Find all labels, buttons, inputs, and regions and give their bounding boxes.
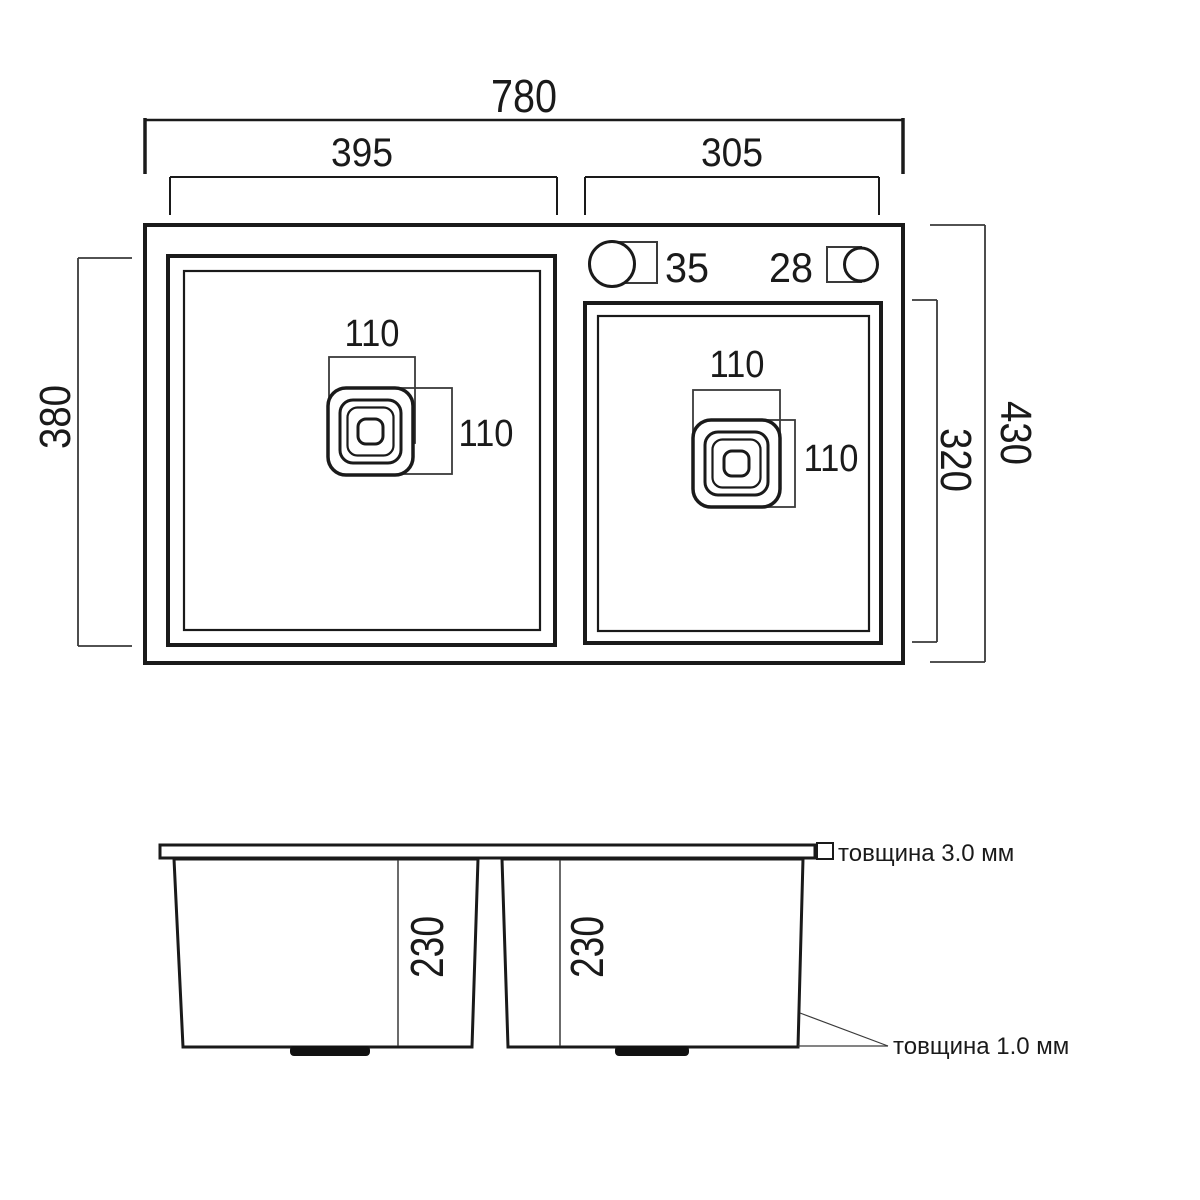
right-depth-label: 230 — [561, 916, 613, 978]
dim-395-label: 395 — [331, 131, 393, 175]
top-view: 780 395 305 380 430 — [31, 70, 1040, 663]
hole-28-label: 28 — [769, 244, 813, 291]
left-depth-label: 230 — [401, 916, 453, 978]
left-drain-height-label: 110 — [459, 413, 514, 455]
dim-780-label: 780 — [491, 70, 557, 122]
dim-320-label: 320 — [931, 428, 980, 492]
left-drain-width-label: 110 — [345, 313, 400, 355]
right-drain-height-label: 110 — [804, 438, 859, 480]
dim-380-label: 380 — [31, 385, 80, 449]
sink-technical-drawing: 780 395 305 380 430 — [0, 0, 1200, 1200]
wall-thickness-leader-1 — [800, 1013, 888, 1046]
extra-hole-28: 28 — [769, 244, 878, 291]
hole-35-label: 35 — [665, 244, 709, 291]
drawing-canvas: 780 395 305 380 430 — [0, 0, 1200, 1200]
dim-305-label: 305 — [701, 131, 763, 175]
extra-hole-circle — [845, 248, 878, 281]
dim-overall-width: 780 — [145, 70, 903, 174]
left-drain-center — [358, 419, 383, 444]
rim-thickness-label: товщина 3.0 мм — [838, 840, 1014, 867]
right-drain: 110 110 — [693, 344, 859, 507]
left-drain-stub — [290, 1046, 370, 1056]
faucet-hole-35: 35 — [590, 242, 710, 292]
faucet-hole-circle — [590, 242, 635, 287]
dim-430-label: 430 — [991, 401, 1040, 465]
side-view: товщина 3.0 мм 230 230 товщина 1.0 мм — [160, 840, 1069, 1060]
dim-right-bowl-width: 305 — [585, 131, 879, 215]
dim-left-bowl-depth: 380 — [31, 258, 132, 646]
dim-left-bowl-width: 395 — [170, 131, 557, 215]
right-drain-stub — [615, 1046, 689, 1056]
wall-thickness-label: товщина 1.0 мм — [893, 1033, 1069, 1060]
dim-right-bowl-depth: 320 — [912, 300, 980, 642]
rim-profile — [160, 845, 815, 858]
left-drain: 110 110 — [328, 313, 514, 475]
right-drain-center — [724, 451, 749, 476]
right-drain-width-label: 110 — [710, 344, 765, 386]
rim-thickness-marker — [817, 843, 833, 859]
right-bowl-profile — [502, 859, 803, 1047]
